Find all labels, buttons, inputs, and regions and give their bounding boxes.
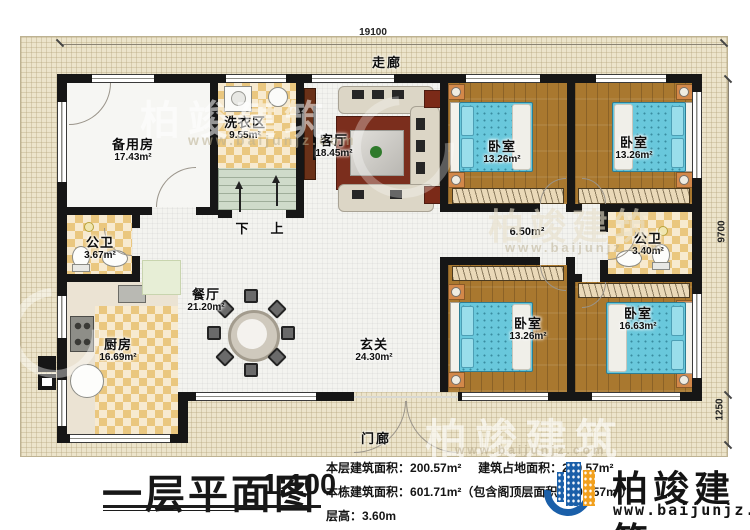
- title-underline-thin: [103, 510, 235, 511]
- room-label-bathroom-right: 公卫 3.40m²: [608, 232, 688, 257]
- room-name: 公卫: [608, 232, 688, 246]
- info-line-3: 层高：3.60m: [326, 507, 396, 524]
- corridor-label: 走廊: [372, 52, 402, 71]
- pillow: [671, 106, 684, 136]
- lamp-icon: [679, 175, 689, 185]
- floor-area-label: 本层建筑面积：: [326, 461, 410, 475]
- brand-logo-building-icon: [557, 472, 564, 502]
- stairs-up-label: 上: [265, 218, 289, 237]
- lamp-icon: [451, 375, 461, 385]
- dimension-right: 9700: [717, 210, 728, 254]
- room-name: 公卫: [60, 236, 140, 250]
- window: [466, 74, 540, 83]
- room-area: 13.26m²: [488, 331, 568, 342]
- toilet-tank: [652, 262, 670, 270]
- wall: [218, 210, 232, 218]
- pillow: [461, 338, 474, 368]
- room-name: 卧室: [488, 317, 568, 331]
- window: [312, 74, 394, 83]
- window: [462, 392, 548, 401]
- dimension-line: [728, 80, 729, 447]
- lamp-icon: [679, 375, 689, 385]
- room-name: 卧室: [462, 140, 542, 154]
- stair-arrow-line: [276, 182, 278, 206]
- brand-logo-building-icon: [583, 470, 595, 506]
- total-area-value: 601.71m²: [410, 485, 461, 499]
- chair-icon: [244, 289, 258, 303]
- window: [70, 434, 170, 443]
- stairs-down-label: 下: [230, 218, 254, 237]
- sofa-cushion: [352, 90, 364, 99]
- wall: [575, 274, 582, 282]
- room-label-bedroom-br: 卧室 16.63m²: [598, 307, 678, 332]
- wall: [567, 74, 575, 212]
- pillow: [461, 106, 474, 136]
- sofa-cushion: [372, 90, 384, 99]
- nightstand-icon: [676, 372, 693, 388]
- chair-icon: [244, 363, 258, 377]
- nightstand-icon: [448, 84, 465, 100]
- dimension-top: 19100: [338, 27, 408, 38]
- lamp-icon: [451, 287, 461, 297]
- toilet-tank: [72, 264, 90, 272]
- wall: [606, 274, 702, 282]
- wall: [440, 257, 448, 392]
- room-name: 洗衣区: [205, 116, 285, 130]
- nightstand-icon: [448, 372, 465, 388]
- nightstand-icon: [676, 84, 693, 100]
- window: [692, 294, 702, 378]
- washer-drum: [231, 91, 246, 106]
- floor-area-value: 200.57m²: [410, 461, 461, 475]
- wall: [606, 204, 702, 212]
- wall: [57, 274, 140, 282]
- room-label-laundry: 洗衣区 9.55m²: [205, 116, 285, 141]
- room-area: 13.26m²: [462, 154, 542, 165]
- window: [196, 392, 316, 401]
- wall: [440, 204, 540, 212]
- room-area: 3.67m²: [60, 250, 140, 261]
- nightstand-icon: [448, 284, 465, 300]
- window: [57, 380, 67, 426]
- stairs: [218, 168, 297, 210]
- room-area: 17.43m²: [93, 152, 173, 163]
- window: [692, 92, 702, 178]
- brand-name: 柏竣建筑: [612, 460, 750, 530]
- dining-table-top: [237, 319, 267, 349]
- room-name: 餐厅: [166, 288, 246, 302]
- chair-icon: [207, 326, 221, 340]
- sofa-cushion: [352, 190, 364, 199]
- wall: [566, 204, 582, 212]
- room-name: 玄关: [334, 338, 414, 352]
- room-label-bathroom-left: 公卫 3.67m²: [60, 236, 140, 261]
- brand-logo-building-icon: [566, 462, 581, 506]
- room-label-bedroom-tr: 卧室 13.26m²: [594, 136, 674, 161]
- room-area: 9.55m²: [205, 130, 285, 141]
- stair-arrow-icon: [272, 175, 280, 183]
- dimension-porch: 1250: [715, 388, 726, 432]
- brand-website: www.baijunjz.com: [613, 501, 750, 519]
- total-area-label: 本栋建筑面积：: [326, 485, 410, 499]
- lamp-icon: [679, 87, 689, 97]
- room-area: 16.63m²: [598, 321, 678, 332]
- wall: [196, 207, 218, 215]
- room-area: 13.26m²: [594, 150, 674, 161]
- room-label-dining: 餐厅 21.20m²: [166, 288, 246, 313]
- wall: [210, 74, 218, 215]
- room-area: 24.30m²: [334, 352, 414, 363]
- room-name: 卧室: [598, 307, 678, 321]
- room-name: 卧室: [594, 136, 674, 150]
- ceiling-lamp-icon: [84, 222, 94, 232]
- window: [226, 74, 286, 83]
- pillow: [671, 340, 684, 370]
- flue-opening: [42, 378, 52, 386]
- chair-icon: [281, 326, 295, 340]
- wall: [178, 392, 188, 443]
- room-label-foyer: 玄关 24.30m²: [334, 338, 414, 363]
- wall: [132, 207, 140, 228]
- dimension-line: [60, 44, 724, 45]
- lamp-icon: [451, 175, 461, 185]
- pillow: [461, 306, 474, 336]
- room-area: 21.20m²: [166, 302, 246, 313]
- height-value: 3.60m: [362, 509, 396, 523]
- floor-plan-sheet: 备用房 17.43m² 洗衣区 9.55m² 客厅 18.45m² 卧室 13.…: [0, 0, 750, 530]
- basin-icon: [268, 87, 288, 107]
- stair-arrow-icon: [235, 181, 243, 189]
- room-label-bedroom-bl: 卧室 13.26m²: [488, 317, 568, 342]
- room-label-spare: 备用房 17.43m²: [93, 138, 173, 163]
- wall: [567, 257, 575, 392]
- wall: [440, 257, 540, 265]
- porch-label: 门廊: [352, 428, 400, 447]
- lamp-icon: [451, 87, 461, 97]
- wall: [286, 210, 304, 218]
- height-label: 层高：: [326, 509, 362, 523]
- hallway-area-label: 6.50m²: [492, 226, 562, 238]
- room-name: 备用房: [93, 138, 173, 152]
- window: [92, 74, 154, 83]
- wall: [600, 204, 608, 232]
- entry-threshold: [354, 396, 458, 398]
- nightstand-icon: [448, 172, 465, 188]
- window: [57, 102, 67, 182]
- window: [596, 74, 666, 83]
- nightstand-icon: [676, 172, 693, 188]
- title-underline: [103, 505, 321, 508]
- footprint-label: 建筑占地面积：: [478, 461, 562, 475]
- room-label-bedroom-tl: 卧室 13.26m²: [462, 140, 542, 165]
- stair-arrow-line: [239, 188, 241, 212]
- window: [592, 392, 680, 401]
- room-area: 3.40m²: [608, 246, 688, 257]
